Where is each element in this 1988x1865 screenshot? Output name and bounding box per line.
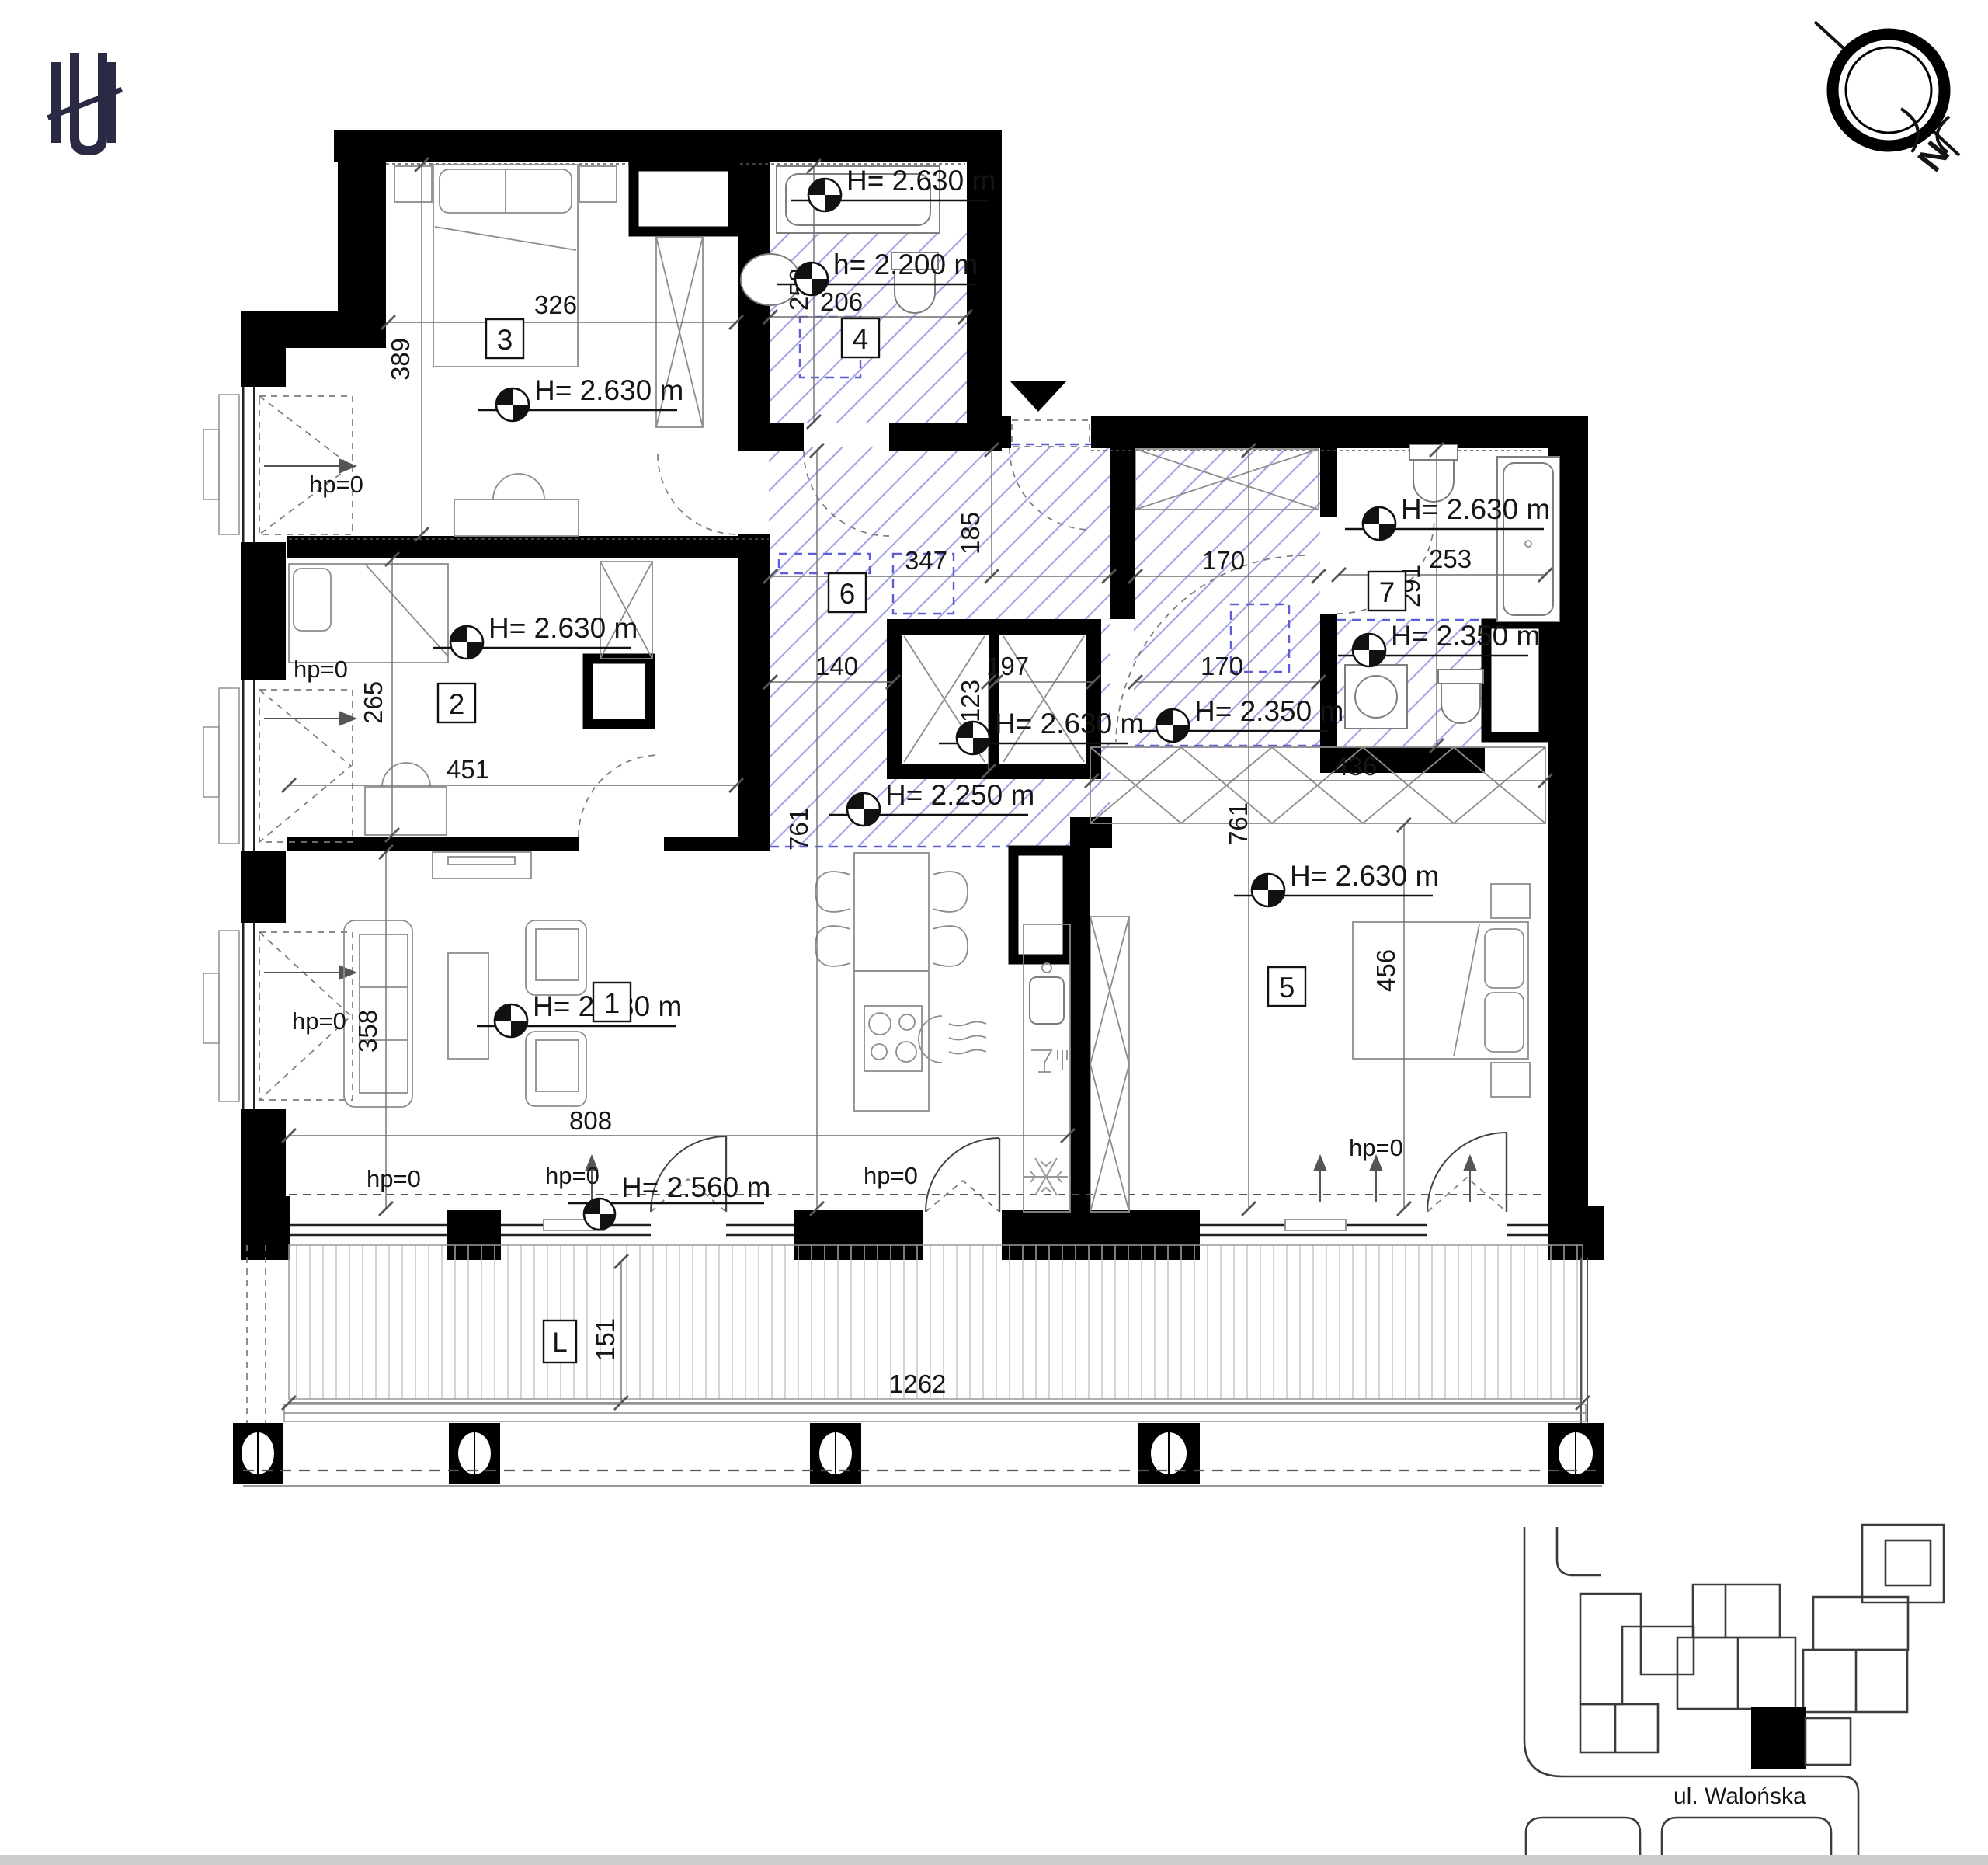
dim-253: 253 [1429, 545, 1472, 573]
street-label: ul. Walońska [1673, 1783, 1806, 1809]
entrance-arrow-icon [1010, 381, 1067, 412]
dim-185: 185 [956, 512, 985, 555]
nightstand [579, 166, 617, 202]
dim-761-a: 761 [784, 808, 813, 851]
room-box-2: 2 [438, 684, 475, 722]
compass-circle [1833, 34, 1945, 146]
level-marker: H= 2.630 m [477, 990, 682, 1037]
sink [1030, 963, 1064, 1024]
desk [365, 787, 447, 835]
bottom-bar [0, 1855, 1988, 1865]
floor-plan-page: N [0, 0, 1988, 1865]
dim-206: 206 [820, 287, 863, 316]
dim-123: 123 [956, 680, 985, 722]
svg-text:H= 2.630 m: H= 2.630 m [534, 374, 683, 406]
level-marker: H= 2.630 m [478, 374, 683, 421]
nightstand [1491, 884, 1530, 918]
shaft-kitchen [1013, 851, 1068, 959]
furniture-room1 [344, 852, 586, 1107]
level-marker: H= 2.630 m [1234, 860, 1439, 906]
shaft-room2 [588, 659, 650, 724]
door-room3 [658, 454, 738, 534]
dim-140: 140 [815, 652, 858, 680]
furniture-room5 [1090, 747, 1545, 1097]
hp-bottom-2: hp=0 [545, 1162, 600, 1189]
svg-text:2: 2 [449, 688, 465, 720]
dining-table [854, 853, 929, 971]
desk [454, 499, 579, 536]
armchair [526, 1032, 586, 1106]
dim-358: 358 [353, 1010, 382, 1053]
dim-808: 808 [569, 1106, 612, 1135]
room-box-1: 1 [593, 983, 631, 1021]
svg-text:H= 2.630 m: H= 2.630 m [995, 708, 1144, 739]
svg-text:4: 4 [853, 323, 869, 355]
north-compass: N [1815, 22, 1959, 179]
svg-text:H= 2.630 m: H= 2.630 m [488, 612, 638, 644]
svg-text:H= 2.630 m: H= 2.630 m [846, 165, 996, 197]
dim-326: 326 [534, 291, 577, 319]
nightstand [1491, 1063, 1530, 1097]
hp-room5: hp=0 [1349, 1134, 1403, 1161]
dim-1262: 1262 [889, 1369, 946, 1398]
bathtub [1497, 457, 1559, 621]
hp-room2: hp=0 [294, 656, 348, 683]
dim-197: 197 [986, 652, 1029, 680]
svg-text:7: 7 [1379, 576, 1395, 608]
fridge-snowflake-icon [1024, 1158, 1068, 1195]
chair [493, 474, 544, 499]
balcony-pillars [233, 1423, 1604, 1484]
dim-456: 456 [1371, 949, 1400, 992]
coffee-table [448, 953, 488, 1059]
svg-text:H= 2.630 m: H= 2.630 m [1290, 860, 1439, 892]
svg-text:3: 3 [497, 324, 513, 356]
dim-436: 436 [1334, 752, 1377, 781]
kitchen-island [854, 971, 929, 1111]
wardrobe-room2 [600, 562, 652, 659]
room-box-L: L [544, 1320, 576, 1362]
hp-room3: hp=0 [309, 471, 363, 498]
room-box-6: 6 [829, 573, 866, 612]
cooktop [864, 1006, 922, 1071]
svg-text:h= 2.200 m: h= 2.200 m [833, 249, 978, 280]
svg-text:1: 1 [604, 987, 620, 1019]
dim-347: 347 [905, 546, 947, 575]
svg-text:L: L [552, 1327, 567, 1358]
balcony [233, 1245, 1604, 1486]
dining-chairs [815, 872, 968, 966]
shaft-room3 [634, 166, 733, 231]
dim-265: 265 [359, 681, 388, 724]
dim-451: 451 [447, 755, 489, 784]
dim-170-b: 170 [1201, 652, 1243, 680]
dim-170-a: 170 [1202, 546, 1245, 575]
developer-logo [47, 53, 123, 155]
balcony-door-3 [1427, 1133, 1507, 1212]
toilet-2 [1438, 670, 1483, 723]
kitchen-counter [1024, 924, 1070, 1212]
balcony-door-2 [926, 1138, 999, 1212]
armchair [526, 920, 586, 995]
svg-text:H= 2.630 m: H= 2.630 m [1401, 493, 1550, 525]
dim-389: 389 [386, 338, 415, 381]
svg-text:H= 2.350 m: H= 2.350 m [1391, 620, 1540, 652]
window-room2 [203, 680, 357, 851]
window-room3 [203, 387, 357, 542]
dim-761-b: 761 [1224, 802, 1253, 845]
tall-cabinets [1090, 917, 1129, 1212]
door-room2 [579, 755, 660, 837]
dim-151: 151 [591, 1318, 620, 1361]
room-box-7: 7 [1368, 572, 1406, 611]
room-box-3: 3 [486, 319, 523, 358]
hall-closet [895, 627, 1093, 771]
dishwasher-icon [1031, 1050, 1067, 1072]
site-plan: ul. Walońska [1524, 1525, 1944, 1863]
nightstand [394, 166, 432, 202]
svg-text:6: 6 [839, 578, 856, 610]
room-box-5: 5 [1268, 967, 1305, 1006]
washing-machine [1345, 665, 1407, 729]
tv-console [433, 852, 531, 879]
hp-bottom-1: hp=0 [367, 1165, 421, 1192]
room-box-4: 4 [842, 318, 879, 357]
chair [382, 763, 430, 787]
svg-text:5: 5 [1279, 972, 1295, 1004]
svg-text:H= 2.250 m: H= 2.250 m [885, 779, 1034, 811]
hp-bottom-3: hp=0 [864, 1162, 918, 1189]
hp-room1-left: hp=0 [292, 1007, 346, 1035]
svg-text:H= 2.560 m: H= 2.560 m [621, 1171, 770, 1203]
level-marker: H= 2.630 m [433, 612, 638, 659]
current-unit-marker [1751, 1707, 1806, 1769]
svg-text:H= 2.350 m: H= 2.350 m [1194, 695, 1343, 727]
